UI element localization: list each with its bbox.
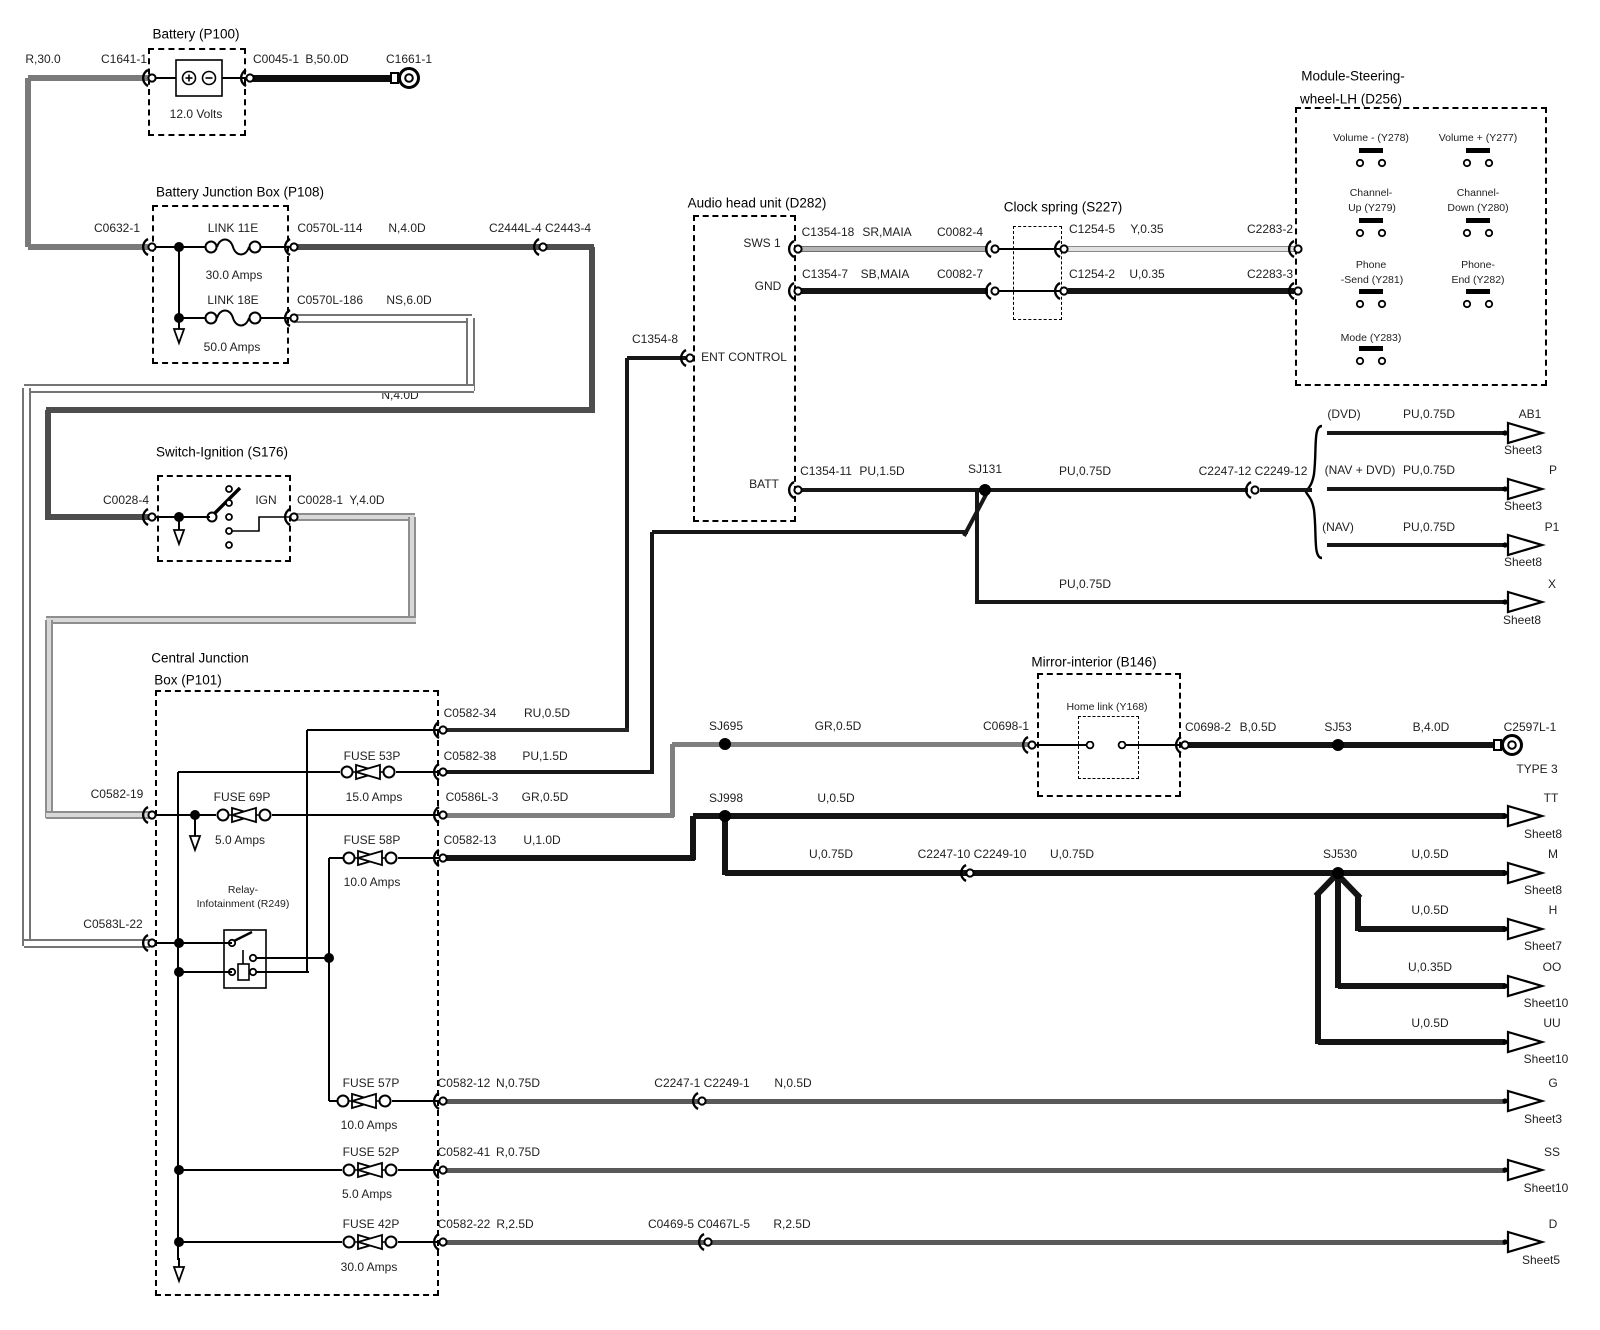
connector-label-c2283-2: C2283-2 [1247, 222, 1293, 236]
ground-arrow-bjb-icon [171, 320, 187, 346]
fuse57p-amps: 10.0 Amps [341, 1118, 398, 1132]
connector-label-c2444l-4: C2444L-4 C2443-4 [489, 221, 591, 235]
wire-y4-2 [46, 616, 416, 624]
wire-label-gr05: GR,0.5D [522, 790, 569, 804]
mirror-title: Mirror-interior (B146) [1031, 655, 1156, 670]
cjb-title-2: Box (P101) [154, 673, 222, 688]
btn-channel-up-label-1: Channel- [1350, 187, 1393, 199]
connector-label-c0582-41: C0582-41 [438, 1145, 491, 1159]
connector-label-c2247-1: C2247-1 C2249-1 [654, 1076, 749, 1090]
fuse-52p-icon [342, 1159, 398, 1181]
connector-label-c1254-5: C1254-5 [1069, 222, 1115, 236]
wire-n4-2 [46, 407, 595, 413]
wire-u075-v [722, 816, 728, 875]
ground-arrow-fuse69-icon [187, 827, 203, 853]
cjb-f53-in [178, 771, 340, 773]
ground-arrow-ignition-icon [171, 521, 187, 547]
connector-label-c0570l-186: C0570L-186 [297, 293, 363, 307]
connector-label-c0469-5: C0469-5 C0467L-5 [648, 1217, 750, 1231]
wire-d [446, 1240, 1505, 1245]
connector-label-c1254-2: C1254-2 [1069, 267, 1115, 281]
splice-label-sj131: SJ131 [968, 462, 1002, 476]
pin-label-sws1: SWS 1 [743, 236, 780, 250]
connector-label-c0582-22: C0582-22 [438, 1217, 491, 1231]
wire-label-pu075-dvd: PU,0.75D [1403, 407, 1455, 421]
fuse69p-label: FUSE 69P [214, 790, 271, 804]
ref-arrow-d-icon [1502, 1229, 1546, 1255]
wire-n4-v2 [45, 410, 51, 520]
connector-label-c0698-2: C0698-2 [1185, 720, 1231, 734]
connector-label-c0028-4: C0028-4 [103, 493, 149, 507]
wire-r30-bjb [28, 244, 148, 250]
homelink-label: Home link (Y168) [1066, 701, 1147, 713]
wire-y4-1 [294, 513, 415, 521]
splice-dot-sj695 [719, 738, 731, 750]
link-18e-icon [204, 305, 262, 331]
splice-label-sj53: SJ53 [1324, 720, 1351, 734]
wire-ru [446, 728, 629, 732]
conn-c0582-13-icon [430, 848, 452, 868]
wire-h [1358, 926, 1505, 932]
connector-label-c0698-1: C0698-1 [983, 719, 1029, 733]
pin-label-ent-control: ENT CONTROL [701, 350, 787, 364]
wire-label-r30: R,30.0 [25, 52, 60, 66]
wire-label-sr-maia: SR,MAIA [862, 225, 911, 239]
wire-ent-v [625, 358, 629, 730]
cjb-row-34 [307, 729, 446, 731]
wire-label-pu15d: PU,1.5D [522, 749, 567, 763]
battery-symbol [174, 57, 224, 99]
connector-label-c0082-7: C0082-7 [937, 267, 983, 281]
relay-infotainment-symbol [222, 926, 268, 992]
wire-u10 [446, 855, 695, 861]
cjb-f52-in [178, 1169, 342, 1171]
junction-dot-relay1 [174, 938, 184, 948]
wire-label-u035d: U,0.35D [1408, 960, 1452, 974]
homelink-contact-left-icon [1085, 741, 1095, 751]
wire-ns6-v1 [466, 318, 475, 391]
fuse-57p-icon [336, 1090, 392, 1112]
junction-dot-relay-out [324, 953, 334, 963]
branch-label-dvd: (DVD) [1327, 407, 1360, 421]
fuse-42p-icon [342, 1231, 398, 1253]
wire-r30-top [28, 75, 150, 81]
wire-label-b50: B,50.0D [305, 52, 348, 66]
wire-riser-v [650, 532, 654, 774]
cjb-f69-out [272, 814, 444, 816]
wire-uu [1318, 1039, 1505, 1045]
wire-y4-3 [46, 811, 150, 819]
wire-label-r25-1: R,2.5D [496, 1217, 533, 1231]
wire-riser-h [652, 530, 968, 534]
wire-tt [693, 813, 1505, 819]
junction-dot-bjb1 [174, 242, 184, 252]
battery-title: Battery (P100) [152, 27, 239, 42]
bjb-title: Battery Junction Box (P108) [156, 185, 324, 200]
connector-label-c0045-1: C0045-1 [253, 52, 299, 66]
ref-arrow-ss-icon [1502, 1157, 1546, 1183]
pin-label-gnd: GND [755, 279, 782, 293]
wire-label-n4-1: N,4.0D [388, 221, 425, 235]
ref-arrow-p1-icon [1502, 532, 1546, 558]
battery-voltage: 12.0 Volts [170, 107, 223, 121]
conn-c2247-12-icon [1242, 480, 1264, 500]
conn-c0582-12-icon [430, 1091, 452, 1111]
connector-label-c1354-7: C1354-7 [802, 267, 848, 281]
relay-title-2: Infotainment (R249) [197, 898, 290, 910]
fuse52p-amps: 5.0 Amps [342, 1187, 392, 1201]
cjb-riser-34 [306, 730, 308, 972]
wire-label-y035: Y,0.35 [1130, 222, 1163, 236]
conn-c2283-3-icon [1285, 281, 1307, 301]
cjb-f69-in [152, 814, 216, 816]
ref-g-sheet: Sheet3 [1524, 1112, 1562, 1126]
btn-phone-send-label-1: Phone [1356, 259, 1386, 271]
connector-label-c1354-11: C1354-11 [800, 464, 852, 478]
ref-ss-sheet: Sheet10 [1524, 1181, 1569, 1195]
connector-label-c0583l-22: C0583L-22 [83, 917, 142, 931]
wire-label-u05-uu: U,0.5D [1411, 1016, 1448, 1030]
conn-c1254-2-icon [1051, 281, 1073, 301]
link11e-amps: 30.0 Amps [206, 268, 263, 282]
ref-h: H [1549, 903, 1558, 917]
link18e-amps: 50.0 Amps [204, 340, 261, 354]
conn-c1354-18-icon [785, 239, 807, 259]
wire-navdvd [1327, 487, 1505, 491]
wire-ns6-2 [24, 384, 474, 393]
wire-label-b40: B,4.0D [1413, 720, 1450, 734]
button-mode-icon [1355, 346, 1387, 368]
button-phone-end-icon [1462, 289, 1494, 311]
conn-c0045-1-icon [237, 68, 259, 88]
wire-ns6-3 [24, 939, 150, 948]
wire-y4-v2 [45, 620, 53, 818]
wire-n075-n05 [446, 1099, 1505, 1104]
conn-c1354-8-icon [677, 348, 699, 368]
wire-label-u05-h: U,0.5D [1411, 903, 1448, 917]
module-title-1: Module-Steering- [1301, 69, 1405, 84]
wire-u035 [1068, 288, 1294, 294]
ref-arrow-x-icon [1502, 589, 1546, 615]
wire-label-gr05-2: GR,0.5D [815, 719, 862, 733]
connector-label-c0570l-114: C0570L-114 [297, 221, 362, 235]
wire-label-u10: U,1.0D [523, 833, 560, 847]
module-title-2: wheel-LH (D256) [1300, 92, 1402, 107]
wire-b50 [252, 75, 402, 82]
link-11e-icon [204, 234, 262, 260]
wire-n4-v1 [589, 247, 595, 413]
button-phone-send-icon [1355, 289, 1387, 311]
conn-c0632-1-icon [139, 237, 161, 257]
fuse-58p-icon [342, 847, 398, 869]
fuse57p-label: FUSE 57P [343, 1076, 400, 1090]
steering-wheel-module-box [1295, 107, 1547, 386]
ref-oo: OO [1543, 960, 1562, 974]
wire-pu15 [800, 488, 985, 492]
wire-r30-left [25, 78, 31, 247]
wire-y035 [1068, 246, 1294, 252]
ref-arrow-p-icon [1502, 476, 1546, 502]
ref-ab1: AB1 [1519, 407, 1542, 421]
connector-label-c0632-1: C0632-1 [94, 221, 140, 235]
wire-label-ru05: RU,0.5D [524, 706, 570, 720]
fuse58p-label: FUSE 58P [344, 833, 401, 847]
ref-arrow-ab1-icon [1502, 420, 1546, 446]
wire-label-u075-1: U,0.75D [809, 847, 853, 861]
wire-oo [1338, 983, 1505, 989]
connector-label-c0582-12: C0582-12 [438, 1076, 491, 1090]
conn-c1354-11-icon [785, 480, 807, 500]
button-channel-up-icon [1355, 218, 1387, 240]
conn-c0582-34-icon [430, 720, 452, 740]
splice-label-sj530: SJ530 [1323, 847, 1357, 861]
conn-c0583l-22-icon [139, 933, 161, 953]
conn-c2247-10-icon [957, 863, 979, 883]
splice-dot-sj530 [1332, 867, 1344, 879]
button-volume-plus-icon [1462, 148, 1494, 170]
wire-label-pu075-x: PU,0.75D [1059, 577, 1111, 591]
ref-d: D [1549, 1217, 1558, 1231]
ref-m: M [1548, 847, 1558, 861]
btn-channel-down-label-1: Channel- [1457, 187, 1500, 199]
connector-label-c2283-3: C2283-3 [1247, 267, 1293, 281]
conn-c0582-22-icon [430, 1232, 452, 1252]
btn-phone-end-label-2: End (Y282) [1451, 274, 1504, 286]
cjb-relay-out1 [256, 957, 329, 959]
connector-label-c0028-1: C0028-1 [297, 493, 343, 507]
wire-sr-maia [800, 246, 988, 252]
junction-dot-fuse69 [190, 810, 200, 820]
splice-label-sj695: SJ695 [709, 719, 743, 733]
conn-c0082-4-icon [982, 239, 1004, 259]
wire-oo-v [1335, 873, 1341, 988]
wire-ss [446, 1168, 1505, 1173]
wire-label-pu075-main: PU,0.75D [1059, 464, 1111, 478]
conn-c0698-2-icon [1172, 735, 1194, 755]
wire-pu15-b [446, 770, 654, 774]
wire-u10-v [690, 816, 696, 860]
conn-c2283-2-icon [1285, 239, 1307, 259]
ground-type-label: TYPE 3 [1516, 762, 1557, 776]
btn-channel-down-label-2: Down (Y280) [1447, 202, 1508, 214]
wire-label-n05: N,0.5D [774, 1076, 811, 1090]
ring-terminal-c2597l-1-icon [1493, 731, 1525, 759]
wire-uu-v [1315, 894, 1321, 1044]
ref-uu: UU [1543, 1016, 1560, 1030]
fuse-53p-icon [340, 761, 396, 783]
conn-c0582-41-icon [430, 1160, 452, 1180]
wire-label-u05-m: U,0.5D [1411, 847, 1448, 861]
cjb-relay-in1 [152, 942, 232, 944]
ign-label: IGN [255, 493, 276, 507]
wire-dvd [1327, 431, 1505, 435]
conn-c0570l-186-icon [281, 308, 303, 328]
cjb-title-1: Central Junction [151, 651, 249, 666]
fuse42p-label: FUSE 42P [343, 1217, 400, 1231]
wire-label-u075-2: U,0.75D [1050, 847, 1094, 861]
splice-dot-sj998 [719, 810, 731, 822]
ref-arrow-m-icon [1502, 860, 1546, 886]
wiring-diagram-canvas: R,30.0C1641-1Battery (P100)C0045-1B,50.0… [0, 0, 1600, 1330]
clockspring-title: Clock spring (S227) [1004, 200, 1123, 215]
btn-mode-label: Mode (Y283) [1341, 332, 1402, 344]
conn-c0698-1-icon [1019, 735, 1041, 755]
ref-x: X [1548, 577, 1556, 591]
ref-arrow-g-icon [1502, 1088, 1546, 1114]
btn-phone-send-label-2: -Send (Y281) [1341, 274, 1403, 286]
wire-y4-v1 [408, 517, 416, 624]
wire-label-ns6: NS,6.0D [386, 293, 431, 307]
homelink-contact-right-icon [1117, 741, 1127, 751]
ref-ss: SS [1544, 1145, 1560, 1159]
fuse-69p-icon [216, 804, 272, 826]
fuse53p-amps: 15.0 Amps [346, 790, 403, 804]
conn-c0586l-3-icon [430, 805, 452, 825]
conn-c0469-5-icon [695, 1232, 717, 1252]
ref-x-sheet: Sheet8 [1503, 613, 1541, 627]
conn-c0582-19-icon [139, 805, 161, 825]
conn-c0082-7-icon [982, 281, 1004, 301]
cjb-relay-in2 [178, 971, 232, 973]
wire-label-r075: R,0.75D [496, 1145, 540, 1159]
fuse69p-amps: 5.0 Amps [215, 833, 265, 847]
wire-pu075-a [985, 488, 1248, 492]
wire-label-u05-tt: U,0.5D [817, 791, 854, 805]
wire-ns6-v2 [22, 388, 31, 946]
wire-x [977, 600, 1505, 604]
btn-volume-minus-label: Volume - (Y278) [1333, 132, 1409, 144]
mir-row1 [1034, 744, 1086, 746]
wire-n4-3 [46, 514, 150, 520]
wire-label-y4: Y,4.0D [349, 493, 384, 507]
wire-ns6-1 [294, 314, 472, 323]
wire-label-sb-maia: SB,MAIA [861, 267, 910, 281]
cjb-f42-in [178, 1241, 342, 1243]
wire-pu075-b [1260, 488, 1312, 492]
ref-arrow-tt-icon [1502, 803, 1546, 829]
bjb-drop [178, 247, 180, 318]
button-volume-minus-icon [1355, 148, 1387, 170]
connector-label-c0582-34: C0582-34 [444, 706, 497, 720]
link11e-label: LINK 11E [208, 221, 258, 235]
ring-terminal-c1661-1-icon [390, 64, 422, 92]
conn-c1354-7-icon [785, 281, 807, 301]
wire-label-u035: U,0.35 [1129, 267, 1164, 281]
wire-label-n075: N,0.75D [496, 1076, 540, 1090]
audio-head-unit-box [693, 215, 796, 522]
junction-dot-fuse42 [174, 1237, 184, 1247]
connector-label-c0582-19: C0582-19 [91, 787, 144, 801]
ref-tt-sheet: Sheet8 [1524, 827, 1562, 841]
ref-arrow-oo-icon [1502, 973, 1546, 999]
splice-dot-sj131 [979, 484, 991, 496]
pin-label-batt: BATT [749, 477, 779, 491]
btn-channel-up-label-2: Up (Y279) [1348, 202, 1396, 214]
ref-arrow-uu-icon [1502, 1029, 1546, 1055]
ref-g: G [1548, 1076, 1557, 1090]
connector-label-c0586l-3: C0586L-3 [446, 790, 499, 804]
wire-nav [1327, 543, 1505, 547]
splice-label-sj998: SJ998 [709, 791, 743, 805]
ref-arrow-h-icon [1502, 916, 1546, 942]
branch-label-nav: (NAV) [1322, 520, 1354, 534]
relay-title-1: Relay- [228, 884, 258, 896]
connector-label-c1641-1: C1641-1 [101, 52, 147, 66]
wire-label-pu075-navdvd: PU,0.75D [1403, 463, 1455, 477]
central-junction-box [155, 690, 439, 1296]
connector-label-c0582-13: C0582-13 [444, 833, 497, 847]
conn-c2444l-4-icon [530, 237, 552, 257]
conn-c2247-1-icon [689, 1091, 711, 1111]
connector-label-c1354-8: C1354-8 [632, 332, 678, 346]
connector-label-c2247-10: C2247-10 C2249-10 [918, 847, 1027, 861]
cjb-relay-out2 [256, 971, 309, 973]
ref-p1: P1 [1545, 520, 1560, 534]
ground-arrow-cjb-icon [171, 1258, 187, 1284]
splice-dot-sj53 [1332, 739, 1344, 751]
wire-m [725, 870, 1505, 876]
wire-label-pu075-nav: PU,0.75D [1403, 520, 1455, 534]
audio-title: Audio head unit (D282) [688, 196, 827, 211]
branch-label-nav-dvd: (NAV + DVD) [1325, 463, 1396, 477]
fuse52p-label: FUSE 52P [343, 1145, 400, 1159]
wire-b05-b40 [1186, 742, 1503, 748]
connector-label-c1354-18: C1354-18 [802, 225, 855, 239]
button-channel-down-icon [1462, 218, 1494, 240]
junction-dot-relay2 [174, 967, 184, 977]
ref-d-sheet: Sheet5 [1522, 1253, 1560, 1267]
cjb-riser-58 [328, 858, 330, 1101]
conn-c1641-1-icon [139, 68, 161, 88]
junction-dot-fuse52 [174, 1165, 184, 1175]
btn-phone-end-label-1: Phone- [1461, 259, 1495, 271]
wire-label-b05: B,0.5D [1240, 720, 1277, 734]
fuse42p-amps: 30.0 Amps [341, 1260, 398, 1274]
ref-p: P [1549, 463, 1557, 477]
ignition-title: Switch-Ignition (S176) [156, 445, 288, 460]
conn-c0028-1-icon [281, 507, 303, 527]
wire-label-pu15: PU,1.5D [859, 464, 904, 478]
connector-label-c2247-12: C2247-12 C2249-12 [1199, 464, 1308, 478]
connector-label-c0082-4: C0082-4 [937, 225, 983, 239]
conn-c0028-4-icon [139, 507, 161, 527]
conn-c1254-5-icon [1051, 239, 1073, 259]
fuse58p-amps: 10.0 Amps [344, 875, 401, 889]
wire-sb-maia [800, 288, 988, 294]
btn-volume-plus-label: Volume + (Y277) [1439, 132, 1518, 144]
connector-label-c0582-38: C0582-38 [444, 749, 497, 763]
conn-c0582-38-icon [430, 762, 452, 782]
wire-gr-v [670, 744, 675, 817]
conn-c0570l-114-icon [281, 237, 303, 257]
branch-brace [1304, 424, 1326, 560]
wire-gr-1 [446, 813, 674, 818]
wire-label-r25-2: R,2.5D [773, 1217, 810, 1231]
